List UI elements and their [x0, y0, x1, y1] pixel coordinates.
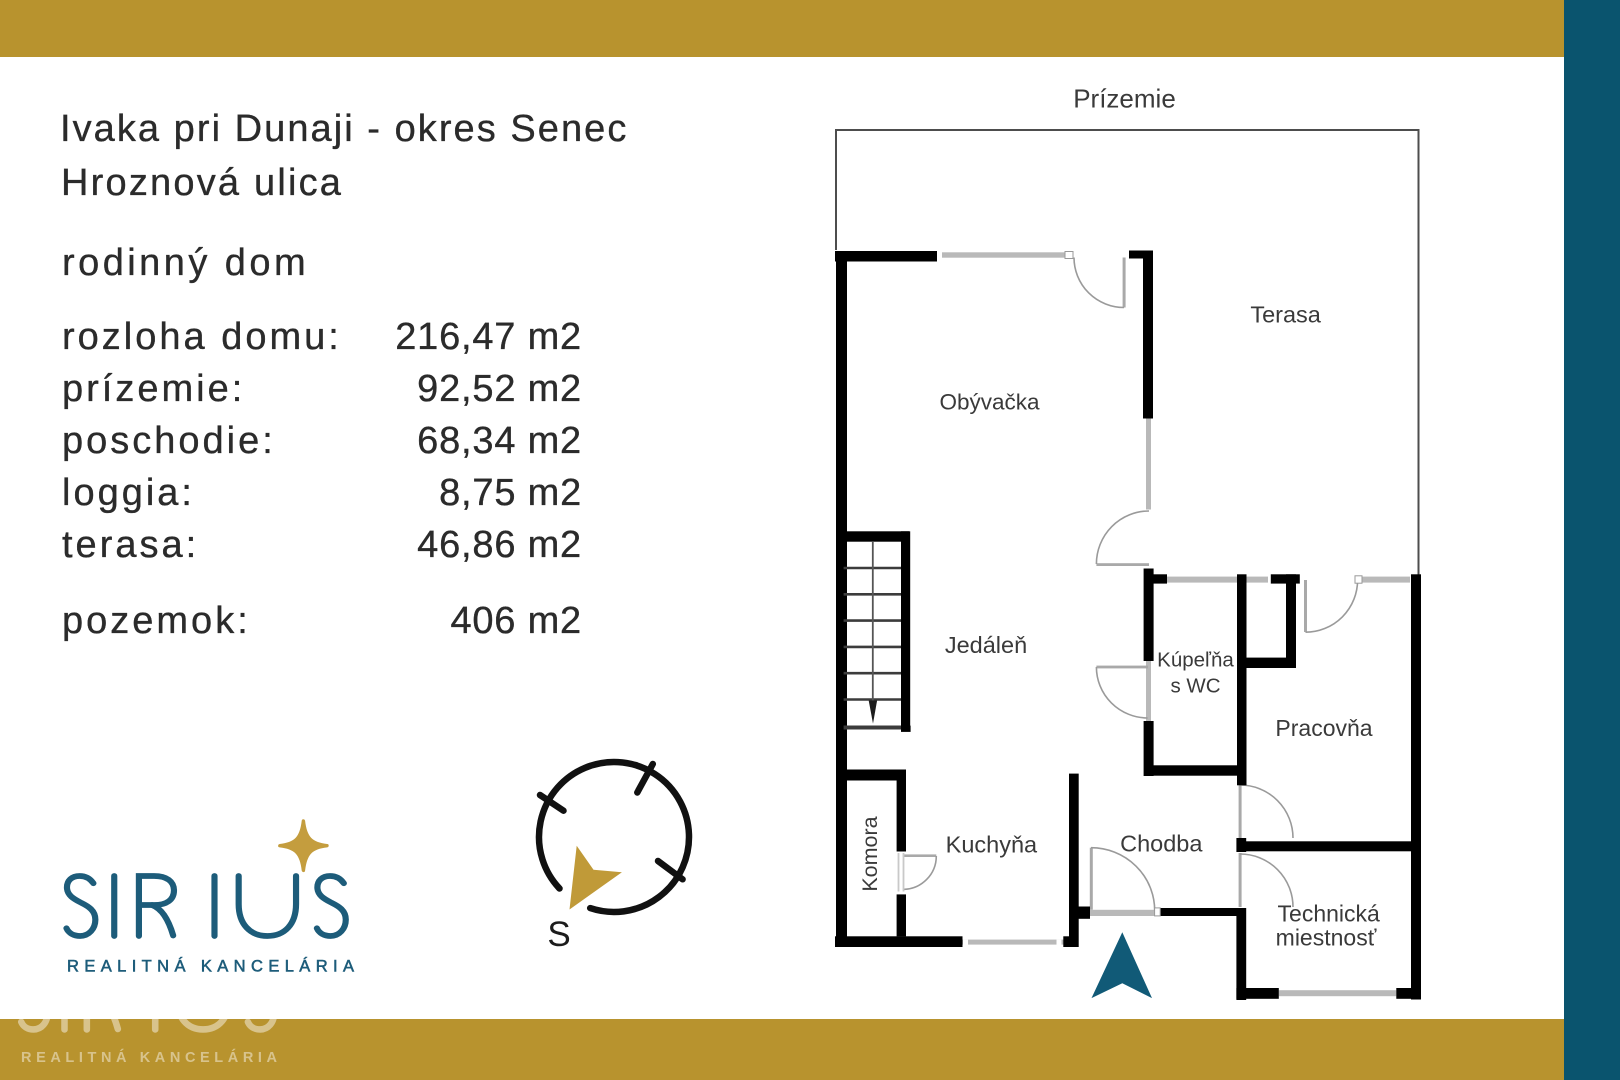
- svg-text:S: S: [547, 915, 570, 954]
- svg-text:Kúpeľňa: Kúpeľňa: [1157, 649, 1234, 672]
- svg-text:Technická: Technická: [1278, 901, 1380, 927]
- svg-text:Pracovňa: Pracovňa: [1275, 715, 1372, 741]
- svg-text:Kuchyňa: Kuchyňa: [946, 832, 1038, 858]
- svg-text:Jedáleň: Jedáleň: [945, 632, 1027, 658]
- svg-text:REALITNÁ KANCELÁRIA: REALITNÁ KANCELÁRIA: [67, 957, 359, 976]
- svg-text:Terasa: Terasa: [1250, 302, 1321, 328]
- svg-text:miestnosť: miestnosť: [1276, 925, 1377, 951]
- svg-text:Obývačka: Obývačka: [939, 390, 1040, 415]
- svg-text:Prízemie: Prízemie: [1073, 84, 1176, 114]
- svg-text:REALITNÁ KANCELÁRIA: REALITNÁ KANCELÁRIA: [21, 1049, 282, 1066]
- svg-text:Chodba: Chodba: [1120, 831, 1203, 857]
- svg-text:Komora: Komora: [858, 816, 882, 891]
- svg-text:s WC: s WC: [1170, 675, 1220, 698]
